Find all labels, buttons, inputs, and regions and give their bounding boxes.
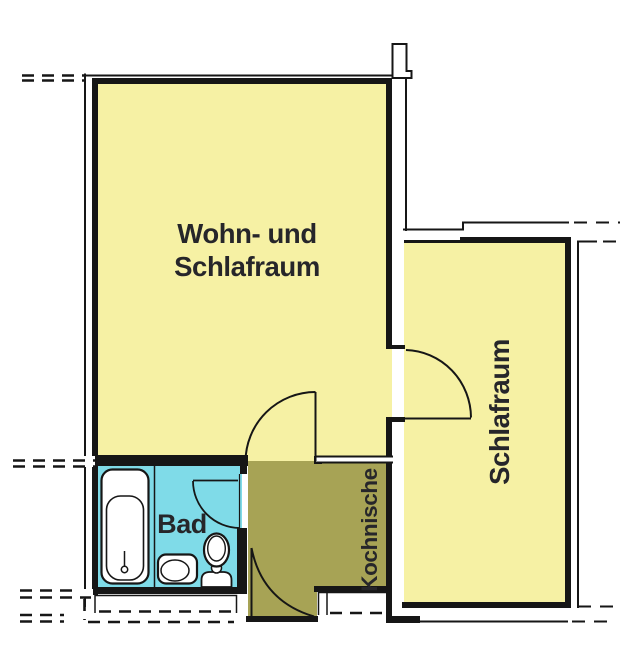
toilet-icon <box>202 534 232 588</box>
room-label-kitchenette: Kochnische <box>357 468 382 592</box>
room-label-living-line2: Schlafraum <box>174 251 320 282</box>
room-label-living-line1: Wohn- und <box>177 218 316 249</box>
floor-plan-svg: Wohn- und Schlafraum Schlafraum Bad Koch… <box>0 0 640 654</box>
floor-plan-page: Wohn- und Schlafraum Schlafraum Bad Koch… <box>0 0 640 654</box>
bathtub-icon <box>102 470 149 584</box>
washbasin-icon <box>158 555 197 584</box>
room-label-bedroom: Schlafraum <box>484 339 515 485</box>
room-label-bath: Bad <box>157 509 207 539</box>
